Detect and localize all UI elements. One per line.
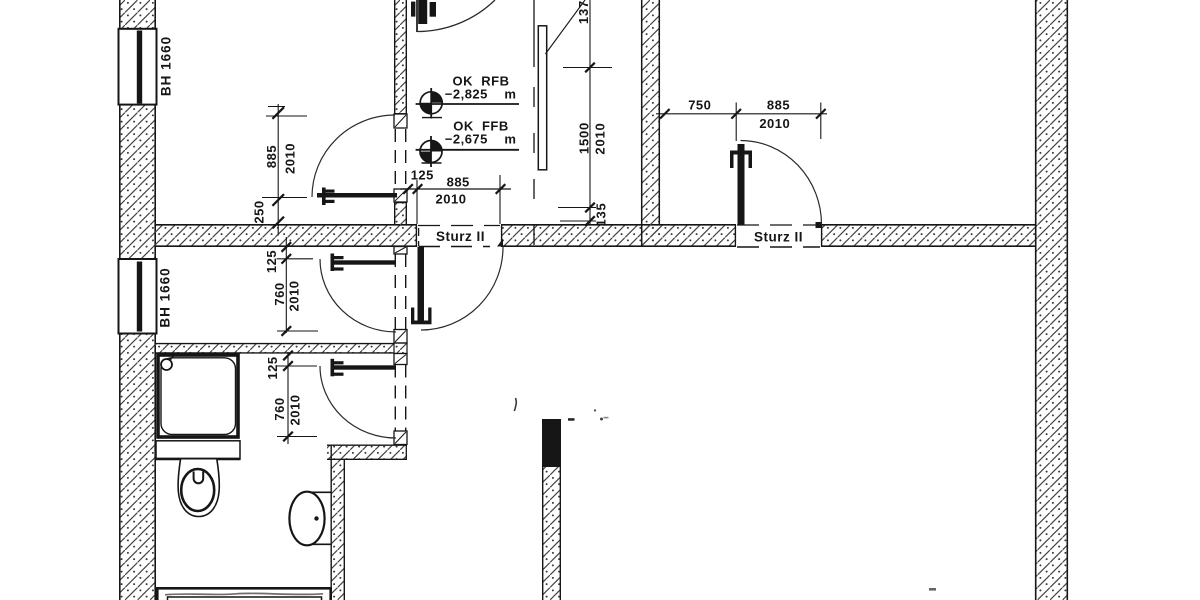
svg-text:2010: 2010	[288, 395, 303, 426]
svg-text:125: 125	[411, 168, 434, 183]
svg-text:Sturz II: Sturz II	[436, 229, 485, 244]
svg-text:BH 1660: BH 1660	[159, 36, 174, 96]
svg-text:2010: 2010	[287, 281, 302, 312]
svg-text:885: 885	[767, 98, 790, 113]
svg-text:135: 135	[594, 202, 609, 226]
svg-text:250: 250	[252, 200, 267, 223]
svg-text:885: 885	[447, 175, 470, 190]
svg-text:750: 750	[688, 98, 711, 113]
svg-text:Sturz II: Sturz II	[754, 229, 803, 244]
svg-text:−2,825 m: −2,825 m	[445, 87, 517, 102]
svg-text:125: 125	[264, 250, 279, 273]
svg-text:2010: 2010	[436, 192, 467, 207]
svg-text:1500: 1500	[577, 122, 592, 154]
svg-text:1375: 1375	[576, 0, 591, 24]
svg-text:760: 760	[272, 397, 287, 420]
svg-text:−2,675 m: −2,675 m	[445, 131, 517, 146]
svg-text:2010: 2010	[283, 143, 298, 174]
svg-text:885: 885	[264, 145, 279, 168]
svg-text:760: 760	[272, 282, 287, 305]
svg-text:125: 125	[265, 356, 280, 379]
svg-text:BH 1660: BH 1660	[158, 267, 173, 327]
svg-text:2010: 2010	[593, 122, 608, 154]
svg-text:2010: 2010	[759, 116, 790, 131]
